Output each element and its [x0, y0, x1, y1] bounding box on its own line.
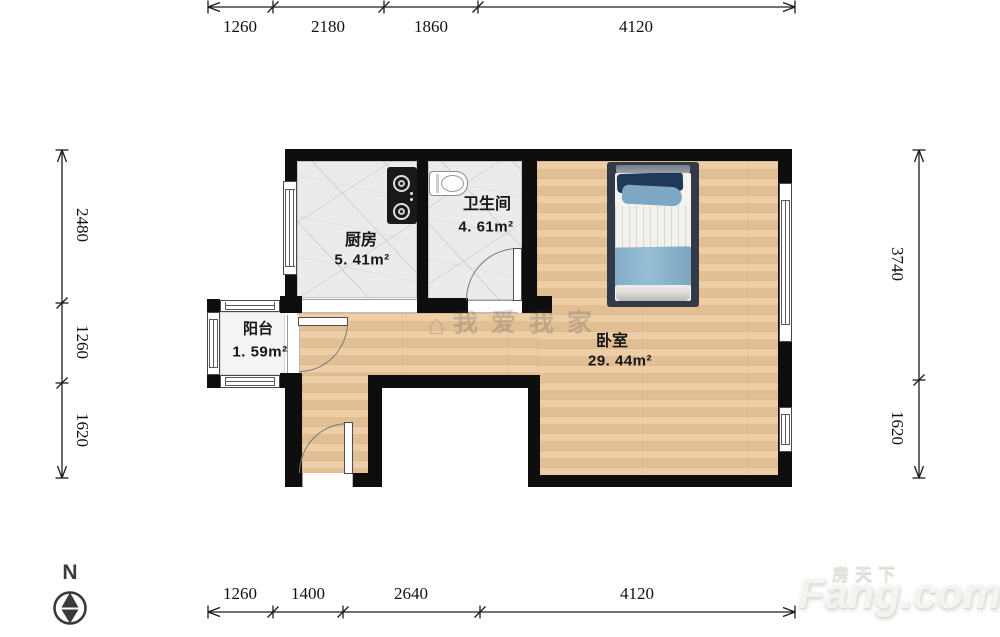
bottom-ticks [268, 606, 486, 619]
wall-balcony-corner-tr [280, 296, 302, 313]
stove-knob-icon [410, 192, 413, 195]
stove-knob-icon [410, 198, 413, 201]
compass-north-label: N [62, 561, 77, 585]
kitchen-name-label: 厨房 [345, 226, 377, 250]
wall-step-horizontal [368, 375, 540, 388]
dim-left-2: 1260 [72, 325, 92, 359]
wall-top [285, 149, 792, 161]
bathroom-door-leaf [513, 248, 522, 301]
dim-bottom-2: 1400 [291, 584, 325, 604]
balcony-window-bottom-glazing [225, 377, 275, 386]
bedroom-area-label: 29. 44m² [588, 353, 652, 370]
dim-bottom-4: 4120 [620, 584, 654, 604]
dim-top-1: 1260 [223, 17, 257, 37]
dim-bottom-1: 1260 [223, 584, 257, 604]
bed-foot-cover [616, 285, 690, 301]
balcony-area-label: 1. 59m² [232, 344, 287, 361]
center-watermark-text: 我爱我家 [453, 309, 605, 337]
balcony-window-top [220, 300, 280, 312]
wall-bathroom-bedroom [522, 161, 537, 296]
balcony-window-bottom [220, 375, 280, 388]
entry-door-leaf [344, 422, 353, 474]
bedroom-window-large [779, 183, 792, 342]
bed-pillow-blue [622, 184, 683, 206]
brand-watermark: 房天下 Fang.com [796, 554, 1000, 634]
dim-bottom-3: 2640 [394, 584, 428, 604]
entry-door-threshold [302, 473, 353, 487]
right-ticks [913, 375, 926, 386]
kitchen-area-label: 5. 41m² [334, 252, 389, 269]
top-ticks [268, 1, 484, 14]
balcony-door-leaf [298, 317, 348, 326]
compass-icon [55, 593, 86, 624]
dim-right-1: 3740 [887, 247, 907, 281]
wall-balcony-corner-tl [207, 299, 220, 312]
dim-left-3: 1620 [72, 413, 92, 447]
bathroom-name-label: 卫生间 [463, 190, 511, 214]
stove-burner-icon [393, 203, 410, 220]
kitchen-window [283, 181, 297, 275]
wall-balcony-corner-bl [207, 375, 220, 388]
dim-top-4: 4120 [619, 17, 653, 37]
bed-sheet [615, 206, 691, 248]
toilet-bowl [441, 175, 464, 192]
wall-vestibule-right [368, 375, 382, 487]
dim-top-3: 1860 [414, 17, 448, 37]
balcony-window-top-glazing [225, 302, 275, 310]
brand-watermark-en: Fang.com [798, 570, 1000, 619]
stove-burner-icon [393, 175, 410, 192]
balcony-window-left-glazing [209, 319, 218, 368]
bed [607, 162, 699, 307]
wall-kitchen-bathroom [417, 161, 428, 313]
center-watermark: ⌂我爱我家 [428, 303, 605, 341]
bedroom-window-large-glazing [781, 200, 790, 325]
bathroom-area-label: 4. 61m² [458, 219, 513, 236]
wall-kitchen-left-lower [285, 274, 297, 298]
kitchen-window-glazing [285, 189, 295, 267]
bed-mattress [615, 173, 691, 301]
balcony-name-label: 阳台 [243, 318, 273, 339]
kitchen-opening-threshold [302, 299, 417, 313]
bedroom-window-small [779, 407, 792, 452]
dim-right-2: 1620 [887, 411, 907, 445]
bed-headboard [616, 165, 690, 173]
house-logo-icon: ⌂ [428, 309, 445, 340]
toilet-tank [436, 174, 439, 193]
wall-kitchen-left-upper [285, 149, 297, 182]
gas-stove [387, 167, 417, 224]
left-ticks [56, 298, 69, 389]
wall-step-vertical [528, 388, 540, 487]
dim-left-1: 2480 [72, 208, 92, 242]
wall-bottom-right [528, 475, 792, 487]
wall-vestibule-bottom [353, 473, 382, 487]
bed-blanket [615, 246, 691, 286]
bedroom-window-small-glazing [781, 414, 790, 445]
dim-top-2: 2180 [311, 17, 345, 37]
balcony-window-left [207, 312, 220, 375]
floorplan-page: { "rooms": { "kitchen": {"name": "厨房", "… [0, 0, 1000, 637]
